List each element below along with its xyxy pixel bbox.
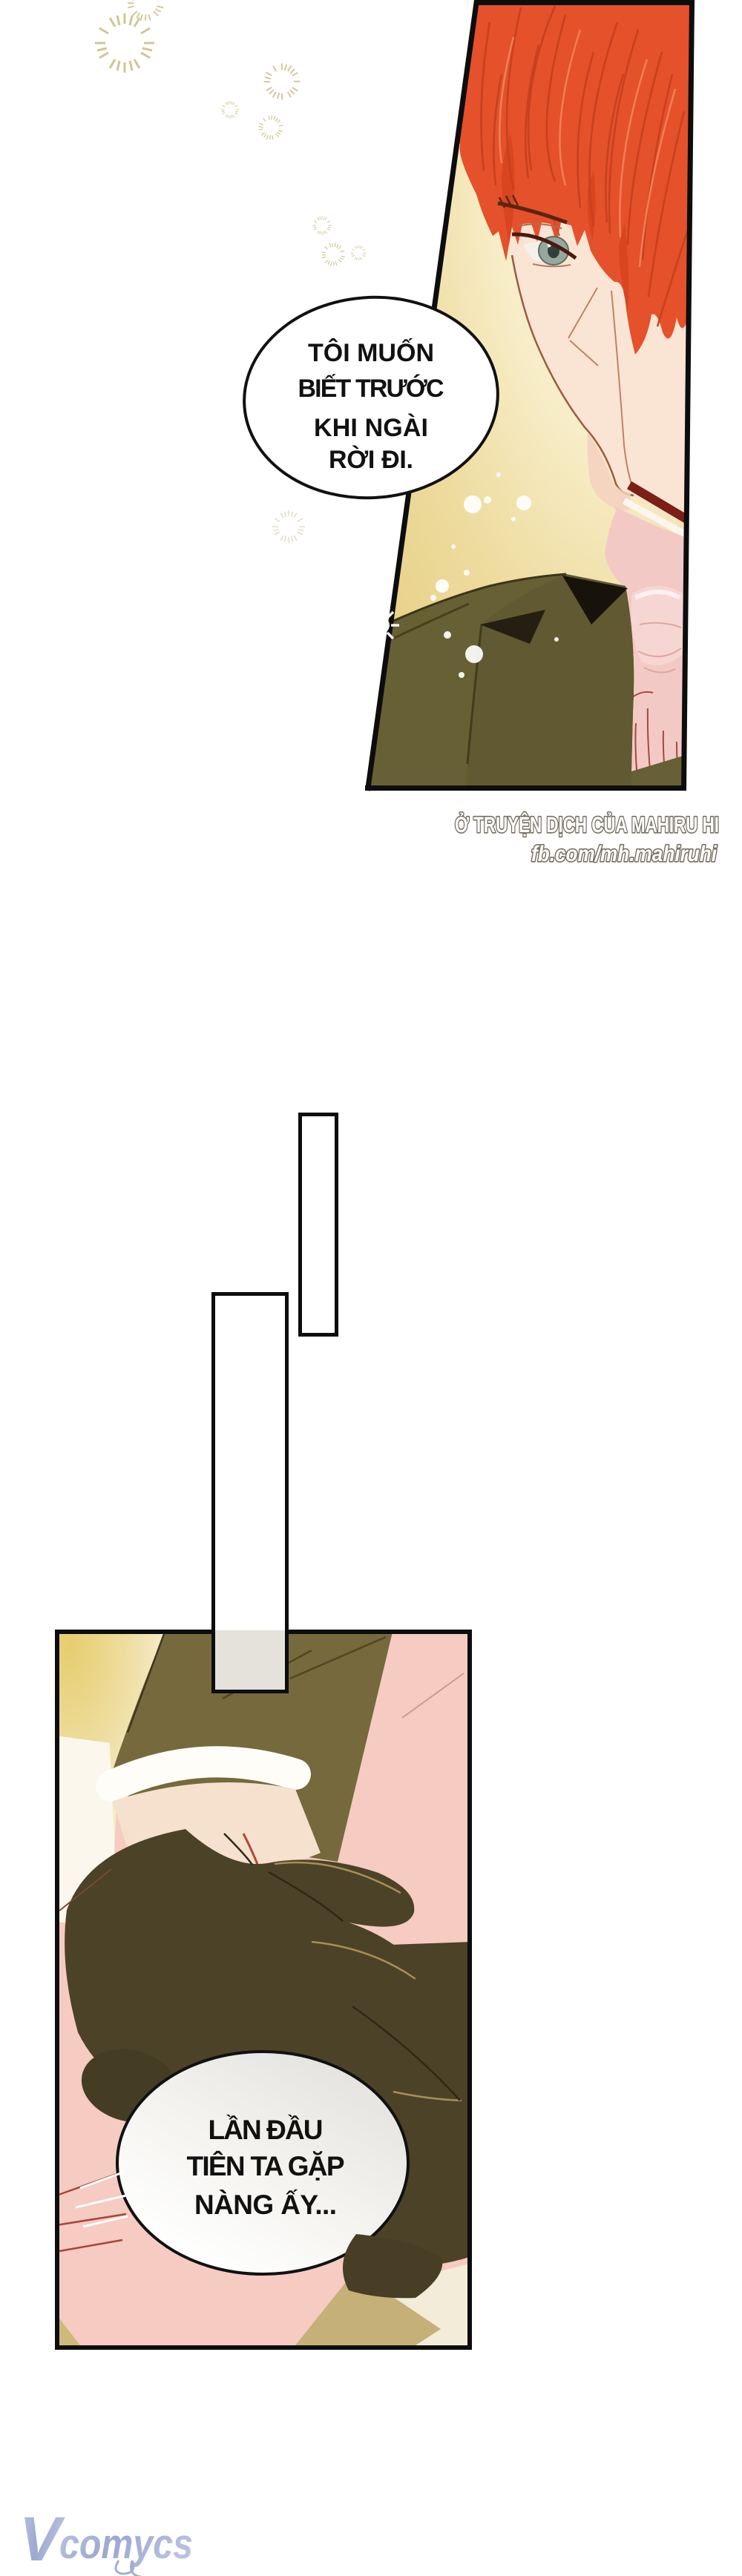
svg-text:TIÊN TA GẶP: TIÊN TA GẶP [187, 2150, 345, 2181]
svg-text:fb.com/mh.mahiruhi: fb.com/mh.mahiruhi [531, 842, 718, 866]
svg-text:V: V [19, 2504, 65, 2574]
svg-text:RỜI ĐI.: RỜI ĐI. [329, 446, 413, 474]
svg-text:KHI NGÀI: KHI NGÀI [314, 414, 428, 442]
svg-text:Ở TRUYỆN DỊCH CỦA MAHIRU HI: Ở TRUYỆN DỊCH CỦA MAHIRU HI [455, 812, 719, 837]
svg-text:comycs: comycs [59, 2520, 193, 2568]
svg-text:LẦN ĐẦU: LẦN ĐẦU [209, 2115, 324, 2145]
svg-text:NÀNG ẤY...: NÀNG ẤY... [194, 2190, 337, 2220]
svg-text:BIẾT TRƯỚC: BIẾT TRƯỚC [298, 375, 444, 403]
svg-text:TÔI MUỐN: TÔI MUỐN [308, 338, 434, 367]
